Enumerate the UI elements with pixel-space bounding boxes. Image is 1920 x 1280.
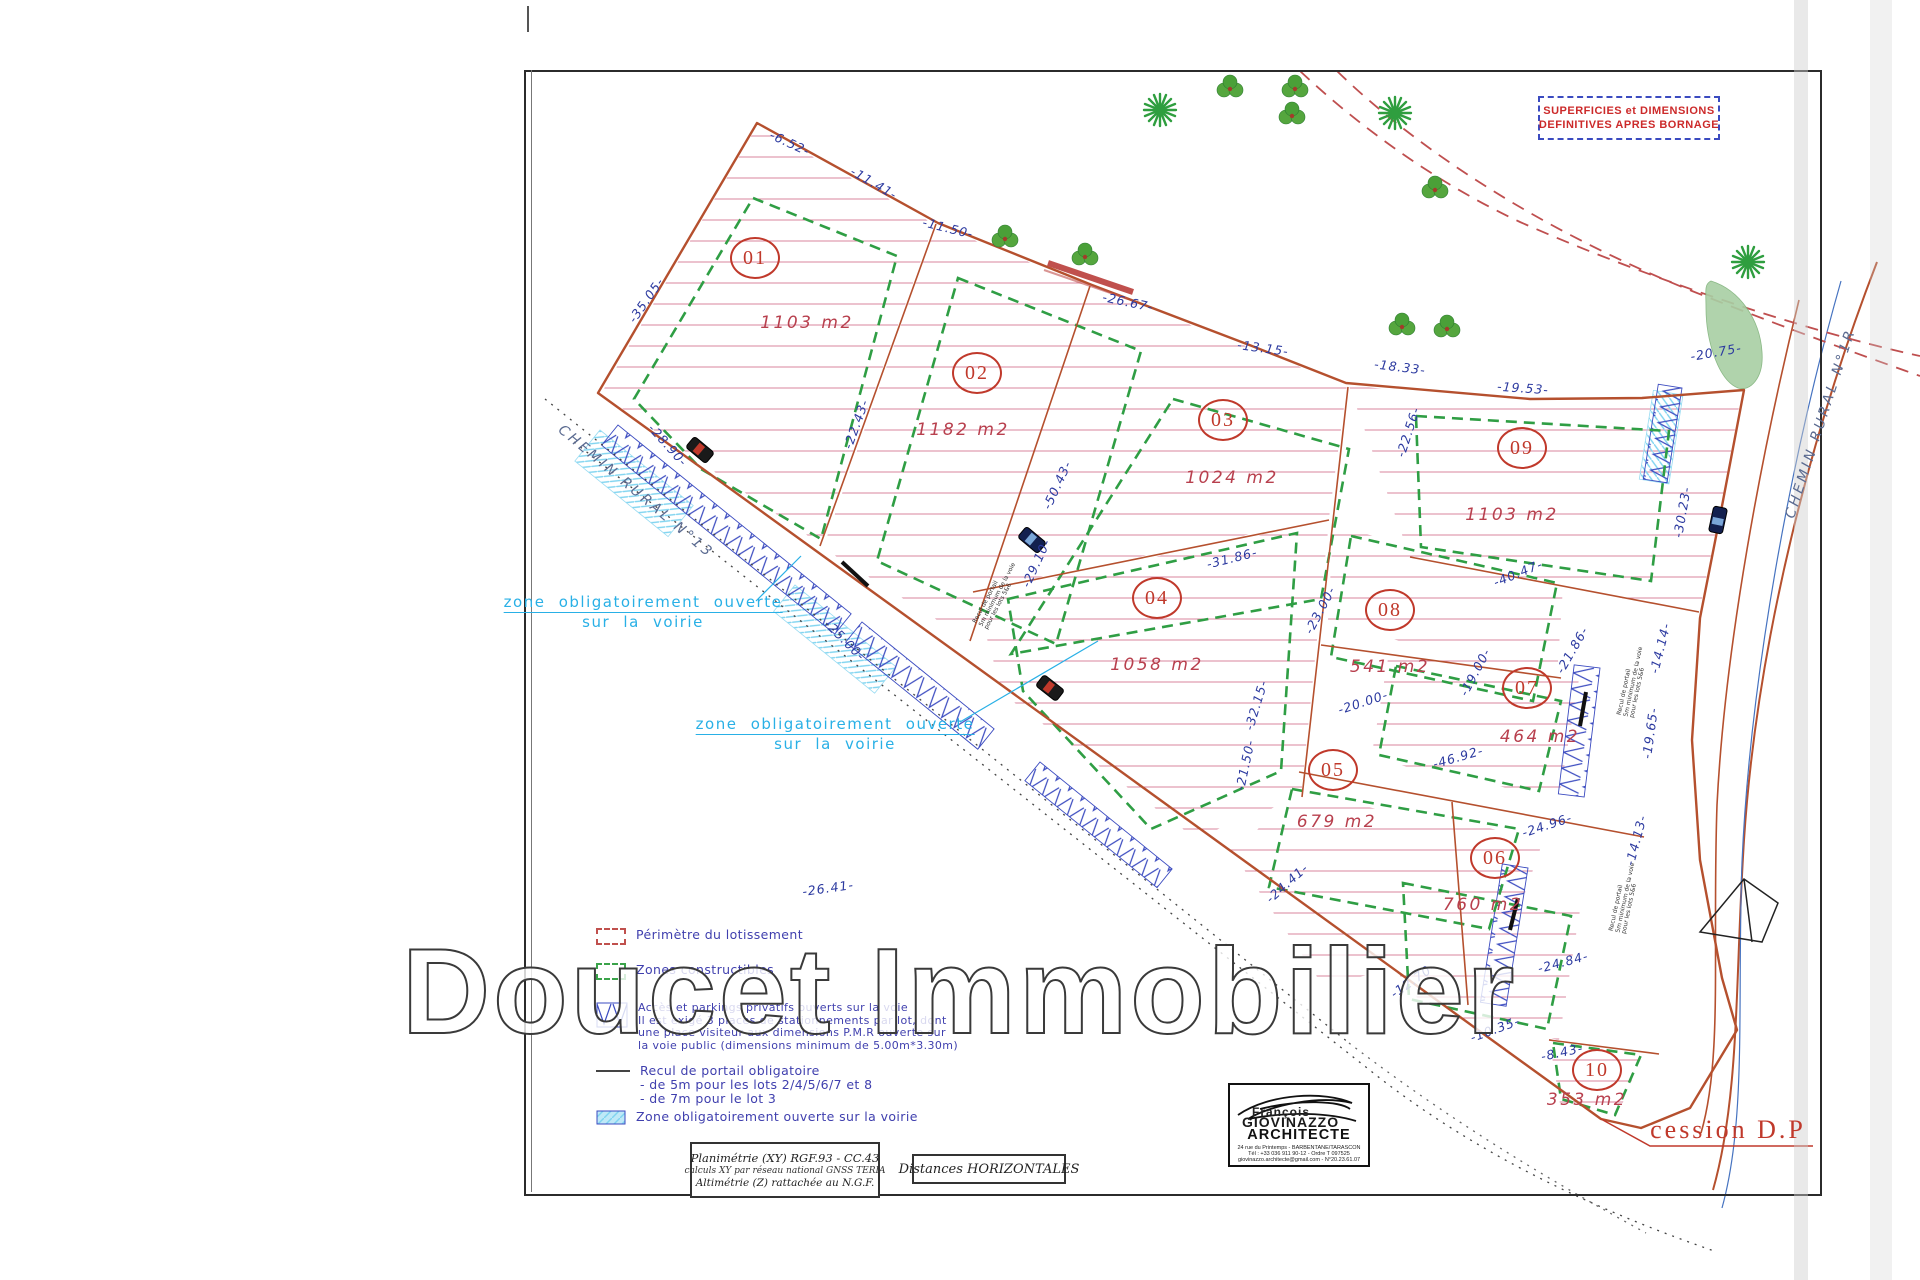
lot-02-number: 02 — [952, 352, 1002, 394]
lot-06-area: 760 m2 — [1443, 895, 1523, 915]
architect-stamp: François GIOVINAZZO ARCHITECTE 24 rue du… — [1228, 1083, 1370, 1167]
legend-recul-line: Recul de portail obligatoire — [640, 1063, 820, 1078]
lot-03-area: 1024 m2 — [1185, 468, 1279, 488]
legend-recul-row: Recul de portail obligatoire - de 5m pou… — [596, 1064, 872, 1106]
lot-05-area: 679 m2 — [1297, 812, 1377, 832]
subdivision-plan-sheet: SUPERFICIES et DIMENSIONS DEFINITIVES AP… — [0, 0, 1920, 1280]
lot-05-number: 05 — [1308, 749, 1358, 791]
legend-recul-label: Recul de portail obligatoire - de 5m pou… — [640, 1064, 872, 1106]
lot-10-area: 353 m2 — [1547, 1090, 1627, 1110]
legend-openzone-row: Zone obligatoirement ouverte sur la voir… — [596, 1110, 918, 1130]
stamp-address-3: giovinazzo.architecte@gmail.com - N°20.2… — [1230, 1157, 1368, 1163]
lot-04-number: 04 — [1132, 577, 1182, 619]
planimetry-line2: calculs XY par réseau national GNSS TERI… — [684, 1166, 885, 1176]
cession-label: cession D.P — [1650, 1115, 1806, 1145]
open-zone-label-1-line1: zone obligatoirement ouverte — [504, 593, 783, 613]
distances-box: Distances HORIZONTALES — [912, 1154, 1066, 1184]
lot-09-number: 09 — [1497, 427, 1547, 469]
lot-01-number: 01 — [730, 237, 780, 279]
openzone-swatch-icon — [596, 1110, 626, 1130]
lot-08-area: 541 m2 — [1350, 657, 1430, 677]
open-zone-label-2-line2: sur la voirie — [774, 735, 896, 753]
watermark: Doucet Immobilier — [402, 930, 1517, 1052]
open-zone-label-1-line2: sur la voirie — [582, 613, 704, 631]
scan-shadow-band — [1794, 0, 1808, 1280]
title-box-line1: SUPERFICIES et DIMENSIONS — [1543, 105, 1714, 117]
distances-label: Distances HORIZONTALES — [899, 1162, 1080, 1177]
lot-01-area: 1103 m2 — [760, 313, 854, 333]
lot-02-area: 1182 m2 — [916, 420, 1010, 440]
lot-07-area: 464 m2 — [1500, 727, 1580, 747]
open-zone-label-2-line1: zone obligatoirement ouverte — [696, 715, 975, 735]
scan-shadow-band-2 — [1870, 0, 1892, 1280]
lot-04-area: 1058 m2 — [1110, 655, 1204, 675]
planimetry-line1: Planimétrie (XY) RGF.93 - CC.43 — [691, 1151, 880, 1165]
scan-mark — [527, 6, 529, 32]
stamp-title: ARCHITECTE — [1230, 1127, 1368, 1143]
planimetry-line3: Altimétrie (Z) rattachée au N.G.F. — [696, 1177, 875, 1189]
lot-07-number: 07 — [1502, 667, 1552, 709]
title-box: SUPERFICIES et DIMENSIONS DEFINITIVES AP… — [1538, 96, 1720, 140]
lot-09-area: 1103 m2 — [1465, 505, 1559, 525]
lot-03-number: 03 — [1198, 399, 1248, 441]
lot-06-number: 06 — [1470, 837, 1520, 879]
setback-line-icon — [596, 1070, 630, 1072]
legend-recul-line: - de 5m pour les lots 2/4/5/6/7 et 8 — [640, 1077, 872, 1092]
open-zone-label-1: zone obligatoirement ouverte sur la voir… — [504, 593, 783, 631]
legend-recul-line: - de 7m pour le lot 3 — [640, 1091, 776, 1106]
planimetry-box: Planimétrie (XY) RGF.93 - CC.43 calculs … — [690, 1142, 880, 1198]
open-zone-label-2: zone obligatoirement ouverte sur la voir… — [696, 715, 975, 753]
title-box-line2: DEFINITIVES APRES BORNAGE — [1539, 119, 1719, 131]
legend-openzone-label: Zone obligatoirement ouverte sur la voir… — [636, 1110, 918, 1124]
lot-08-number: 08 — [1365, 589, 1415, 631]
